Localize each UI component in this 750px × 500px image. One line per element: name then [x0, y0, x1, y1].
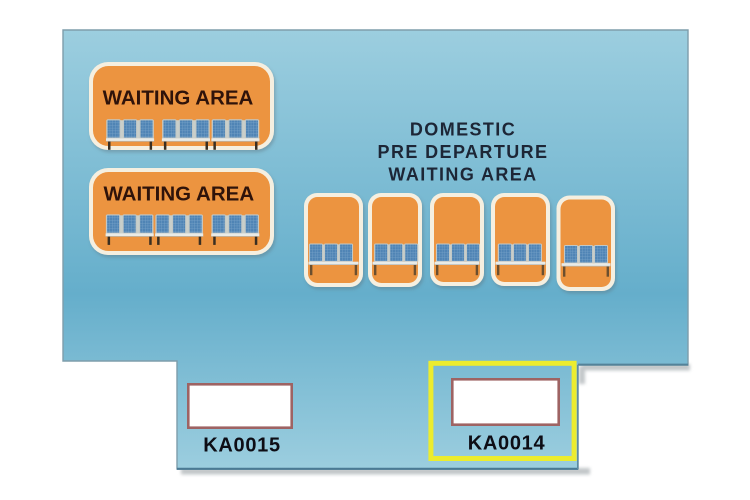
- svg-text:KA0015: KA0015: [203, 435, 281, 457]
- svg-text:WAITING AREA: WAITING AREA: [103, 87, 254, 110]
- svg-text:DOMESTIC: DOMESTIC: [410, 120, 516, 140]
- svg-text:KA0014: KA0014: [468, 433, 546, 455]
- svg-text:WAITING AREA: WAITING AREA: [103, 182, 254, 205]
- svg-text:WAITING AREA: WAITING AREA: [388, 165, 537, 185]
- svg-text:PRE DEPARTURE: PRE DEPARTURE: [378, 142, 549, 162]
